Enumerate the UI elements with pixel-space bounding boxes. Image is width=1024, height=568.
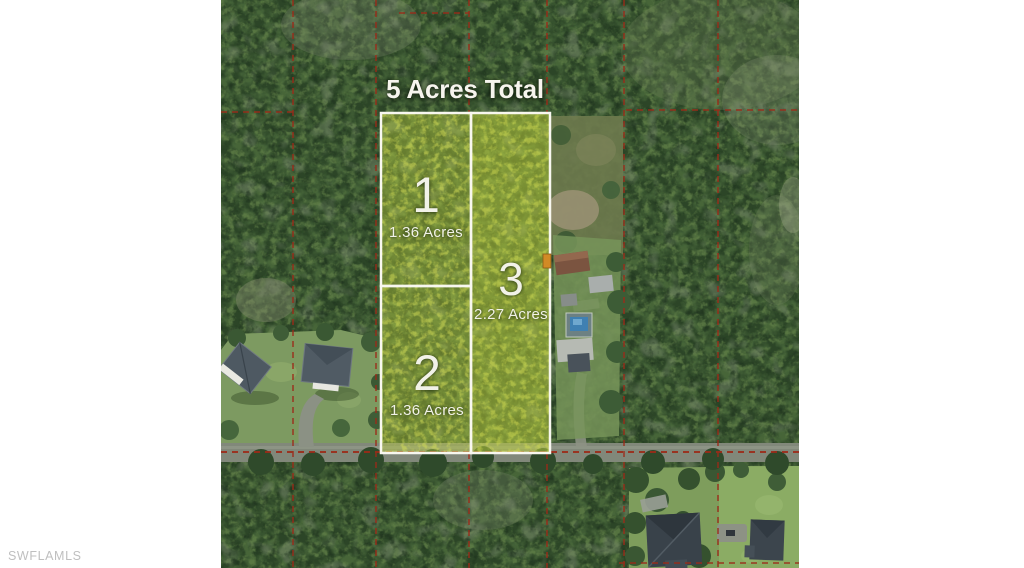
shed xyxy=(561,293,578,306)
shed xyxy=(588,275,614,293)
lot-3-number: 3 xyxy=(474,258,548,302)
mls-watermark: SWFLAMLS xyxy=(8,549,82,563)
pool-enclosure xyxy=(566,313,592,337)
right-property xyxy=(553,235,631,440)
aerial-photo: 5 Acres Total 1 1.36 Acres 2 1.36 Acres … xyxy=(221,0,799,568)
lot-2-label: 2 1.36 Acres xyxy=(390,350,464,419)
cleared-parcel xyxy=(547,116,623,255)
lot-1-label: 1 1.36 Acres xyxy=(389,172,463,241)
house xyxy=(646,513,703,568)
lot-3-area: 2.27 Acres xyxy=(474,306,548,323)
lot-1-area: 1.36 Acres xyxy=(389,224,463,241)
listing-image: 5 Acres Total 1 1.36 Acres 2 1.36 Acres … xyxy=(0,0,1024,568)
total-acreage-title: 5 Acres Total xyxy=(386,74,544,105)
lot-2-area: 1.36 Acres xyxy=(390,402,464,419)
lot-3-label: 3 2.27 Acres xyxy=(474,258,548,323)
lot-2-number: 2 xyxy=(390,350,464,398)
lot-1-number: 1 xyxy=(389,172,463,220)
